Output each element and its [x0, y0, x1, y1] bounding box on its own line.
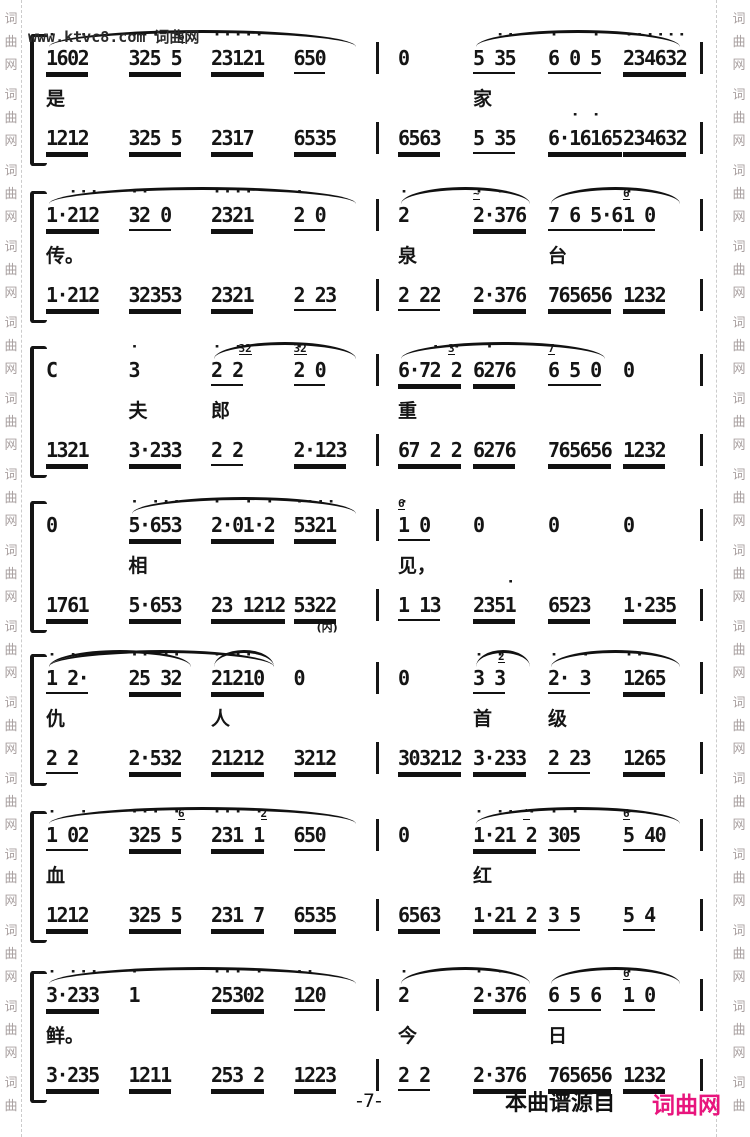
system-half: 0˙ ˙3 32˙ ˙2· 3˙˙ 1265首级3032123·2332 231… — [398, 666, 698, 786]
note-group: 1·212 — [46, 283, 99, 311]
note-cell: 303212 — [398, 746, 473, 778]
note-group: 0 — [294, 666, 305, 692]
note-cell: ˙ ˙˙ ˙1·21 2' — [473, 823, 548, 855]
note-cell: 5 35 — [473, 126, 548, 158]
grace-note: 6 — [623, 808, 630, 820]
note-cell: ˙˙˙1·212 — [46, 203, 129, 235]
system-half: ˙ ˙ 1 2·˙˙ ˙˙25 32˙˙˙˙ 212100仇人2 22·5322… — [46, 666, 376, 786]
note-cell: ˙˙˙˙˙23121 — [211, 46, 294, 78]
lyric-text: 人 — [211, 704, 294, 732]
note-cell: ˙˙ 1265 — [623, 666, 698, 698]
note-cell: 0 — [548, 513, 623, 545]
note-cell: 1212 — [46, 126, 129, 158]
octave-dots: ˙˙˙˙˙ — [211, 35, 264, 49]
note-cell: ˙˙˙˙5321 — [294, 513, 377, 545]
system-half: ˙2˙ ˙ 2·376~7 6 5·6˙ 1 06泉台2 222·3767656… — [398, 203, 698, 323]
barline — [376, 899, 379, 931]
system-half: C˙3˙ ˙2 232˙ 2 032夫郎13213·2332 22·123 — [46, 358, 376, 478]
slur-layer — [398, 494, 698, 512]
note-group: 2 2 — [211, 438, 243, 466]
vocal-line: ˙ ˙˙˙3·233˙1˙˙˙ ˙25302˙˙ 120 — [46, 983, 376, 1015]
grace-note: ' — [523, 808, 530, 820]
note-cell: ˙ 1 06 — [623, 203, 698, 235]
note-cell: ˙ 6276 — [473, 358, 548, 390]
vocal-line: ˙ ˙ 1 2·˙˙ ˙˙25 32˙˙˙˙ 212100 — [46, 666, 376, 698]
system-bracket — [30, 654, 47, 786]
note-group: 1761 — [46, 593, 88, 621]
note-cell: C — [46, 358, 129, 390]
note-cell: ˙ ˙305 — [548, 823, 623, 855]
lyric-text: 台 — [548, 241, 623, 269]
note-cell: 1232 — [623, 283, 698, 315]
accompaniment-line: 2 222·3767656561232 — [398, 283, 698, 315]
note-cell: 5·653 — [129, 593, 212, 625]
grace-note: 32 — [239, 343, 252, 355]
octave-dots: ˙˙˙ — [46, 192, 99, 206]
note-cell: ˙˙ ˙˙25 32 — [129, 666, 212, 698]
octave-dots: ˙˙˙˙ — [211, 192, 253, 206]
barline — [700, 434, 703, 466]
note-group: 5322 — [294, 593, 336, 621]
note-cell: 231 7 — [211, 903, 294, 935]
note-group: 6535 — [294, 126, 336, 154]
barline — [700, 122, 703, 154]
octave-dots: ˙ ˙ — [473, 972, 526, 986]
note-group: 2317 — [211, 126, 253, 154]
note-cell: 0 — [473, 513, 548, 545]
annotation-text: (内) — [317, 619, 338, 635]
accompaniment-line: 3·2351211253 21223 — [46, 1063, 376, 1095]
note-group: 2321 — [211, 283, 253, 311]
note-group: 67 2 2 — [398, 438, 461, 466]
note-cell: 1761 — [46, 593, 129, 625]
note-group: 234632 — [623, 126, 686, 154]
accompaniment-line: 65631·21 23 55 4 — [398, 903, 698, 935]
note-cell: 6563 — [398, 126, 473, 158]
note-cell: ˙ ˙˙˙3·233 — [46, 983, 129, 1015]
barline — [700, 662, 703, 694]
lyrics-line: 是 — [46, 84, 376, 112]
lyric-text: 首 — [473, 704, 548, 732]
note-cell: 1321 — [46, 438, 129, 470]
lyrics-line: 见， — [398, 551, 698, 579]
note-cell: 21212 — [211, 746, 294, 778]
barline — [700, 819, 703, 851]
vocal-line: 0˙ ˙˙˙5·653˙ ˙ ˙2·01·2˙˙˙˙5321 — [46, 513, 376, 545]
octave-dots: ˙˙˙˙ — [211, 655, 264, 669]
note-group: 0 — [623, 513, 634, 539]
note-cell: 0 — [623, 513, 698, 545]
note-cell: 1·212 — [46, 283, 129, 315]
note-cell: 3·233 — [129, 438, 212, 470]
note-cell: 1212 — [46, 903, 129, 935]
note-cell: 0 — [398, 666, 473, 698]
note-group: 0 — [398, 666, 409, 692]
barline — [376, 742, 379, 774]
barline — [376, 509, 379, 541]
note-group: 1232 — [623, 283, 665, 311]
note-group: C — [46, 358, 57, 384]
note-group: 1 13 — [398, 593, 440, 621]
note-cell: 650 — [294, 46, 377, 78]
note-cell: 5322(内) — [294, 593, 377, 625]
note-cell: ˙˙ 32 0 — [129, 203, 212, 235]
grace-note: 2 — [498, 651, 505, 663]
lyrics-line: 相 — [46, 551, 376, 579]
octave-dots: ˙ ˙ — [548, 812, 580, 826]
lyric-text: 仇 — [46, 704, 129, 732]
note-group: 6 5 0 — [548, 358, 601, 386]
note-group: 650 — [294, 823, 326, 851]
site-watermark: www.ktvc8.com 词曲网 — [28, 26, 199, 47]
note-cell: ˙˙˙ ˙325 56 — [129, 46, 212, 78]
lyric-text: 重 — [398, 396, 473, 424]
score-system: ˙ ˙ 1 2·˙˙ ˙˙25 32˙˙˙˙ 212100仇人2 22·5322… — [0, 666, 750, 796]
note-cell: 6276 — [473, 438, 548, 470]
note-group: 1211 — [129, 1063, 171, 1091]
barline — [700, 199, 703, 231]
octave-dots: ˙ ˙ — [548, 115, 622, 129]
lyrics-line: 泉台 — [398, 241, 698, 269]
system-half: 0 ˙˙5 35˙ ˙6 0 5˙˙˙˙˙˙234632家65635 35 ˙ … — [398, 46, 698, 166]
barline — [376, 42, 379, 74]
note-cell: 6 5 6 — [548, 983, 623, 1015]
note-cell: 6 5 07 — [548, 358, 623, 390]
watermark-char: 曲 — [731, 487, 747, 506]
lyric-text: 家 — [473, 84, 548, 112]
barline — [700, 742, 703, 774]
note-cell: 3212 — [294, 746, 377, 778]
note-cell: 5 4 — [623, 903, 698, 935]
vocal-line: 0˙ ˙˙ ˙1·21 2'˙ ˙305˙ 5 406 — [398, 823, 698, 855]
note-group: 1·21 2 — [473, 903, 536, 931]
watermark-char: 曲 — [731, 335, 747, 354]
footer-brand-logo: 词曲网 — [652, 1086, 721, 1120]
system-bracket — [30, 191, 47, 323]
note-group: 0 — [398, 823, 409, 849]
note-cell: 253 2 — [211, 1063, 294, 1095]
note-group: 7 6 5·6 — [548, 203, 622, 231]
octave-dots: ˙ — [398, 192, 409, 206]
barline — [376, 434, 379, 466]
barline — [376, 589, 379, 621]
note-cell: 650 — [294, 823, 377, 855]
note-group: 6276 — [473, 438, 515, 466]
vocal-line: 0˙ ˙3 32˙ ˙2· 3˙˙ 1265 — [398, 666, 698, 698]
octave-dots: ˙˙ — [473, 35, 515, 49]
note-cell: ˙ ˙6·72 23 — [398, 358, 473, 390]
vocal-line: ˙ ˙6·72 23 ˙ 62766 5 070 — [398, 358, 698, 390]
note-group: 3·233 — [129, 438, 182, 466]
barline — [376, 279, 379, 311]
lyrics-line: 红 — [398, 861, 698, 889]
barline — [700, 42, 703, 74]
note-group: 2 23 — [548, 746, 590, 774]
vocal-line: C˙3˙ ˙2 232˙ 2 032 — [46, 358, 376, 390]
octave-dots: ˙˙ ˙˙ — [129, 655, 182, 669]
note-cell: 2·123 — [294, 438, 377, 470]
note-group: 3212 — [294, 746, 336, 774]
lyrics-line: 家 — [398, 84, 698, 112]
lyric-text: 传。 — [46, 241, 129, 269]
note-group: 325 5 — [129, 903, 182, 931]
accompaniment-line: 1·2123235323212 23 — [46, 283, 376, 315]
lyric-text: 见， — [398, 551, 473, 579]
note-group: 0 — [398, 46, 409, 72]
note-cell: ˙ 1 06 — [398, 513, 473, 545]
note-group: 3·235 — [46, 1063, 99, 1091]
note-cell: ˙ 2 0 — [294, 203, 377, 235]
page-number: -7- — [356, 1090, 382, 1112]
octave-dots: ˙ — [473, 582, 515, 596]
note-cell: ˙˙˙ ˙25302 — [211, 983, 294, 1015]
note-cell: 2·376 — [473, 283, 548, 315]
grace-note: 7 — [548, 343, 555, 355]
note-cell: ˙ ˙2 232 — [211, 358, 294, 390]
watermark-char: 词 — [3, 8, 19, 27]
note-cell: 2 2 — [211, 438, 294, 470]
note-cell: ˙1 — [129, 983, 212, 1015]
note-cell: 1265 — [623, 746, 698, 778]
note-cell: 2321 — [211, 283, 294, 315]
watermark-char: 曲 — [3, 183, 19, 202]
lyrics-line: 仇人 — [46, 704, 376, 732]
note-cell: 325 5 — [129, 126, 212, 158]
system-half: ˙˙˙1·212˙˙ 32 0˙˙˙˙2321˙ 2 0传。1·21232353… — [46, 203, 376, 323]
note-cell: 0 — [294, 666, 377, 698]
grace-note: ~ — [473, 188, 480, 200]
octave-dots: ˙ ˙ — [46, 655, 88, 669]
note-group: 325 5 — [129, 126, 182, 154]
vocal-line: ˙ 1 06000 — [398, 513, 698, 545]
grace-note: 6 — [178, 808, 185, 820]
watermark-char: 词 — [731, 8, 747, 27]
note-cell: 1·21 2 — [473, 903, 548, 935]
octave-dots: ˙˙˙ ˙ — [129, 812, 182, 826]
octave-dots: ˙˙ — [294, 972, 326, 986]
barline — [376, 354, 379, 386]
note-group: 1223 — [294, 1063, 336, 1091]
accompaniment-line: 3032123·2332 231265 — [398, 746, 698, 778]
note-group: 303212 — [398, 746, 461, 774]
note-cell: ˙2351 — [473, 593, 548, 625]
note-cell: ˙˙ 120 — [294, 983, 377, 1015]
accompaniment-line: 67 2 262767656561232 — [398, 438, 698, 470]
note-cell: 234632 — [623, 126, 698, 158]
note-cell: ˙˙5 35 — [473, 46, 548, 78]
note-cell: ˙ ˙˙˙5·653 — [129, 513, 212, 545]
barline — [700, 979, 703, 1011]
note-cell: ˙ ˙ 6·16165 — [548, 126, 623, 158]
vocal-line: ˙ ˙1 02˙˙˙ ˙325 56˙˙˙ ˙231 12650 — [46, 823, 376, 855]
note-cell: ˙ 5 406 — [623, 823, 698, 855]
system-bracket — [30, 346, 47, 478]
note-group: 21212 — [211, 746, 264, 774]
note-cell: ˙˙˙ ˙231 12 — [211, 823, 294, 855]
lyric-text: 郎 — [211, 396, 294, 424]
system-half: ˙ ˙˙˙3·233˙1˙˙˙ ˙25302˙˙ 120鲜。3·23512112… — [46, 983, 376, 1103]
note-cell: 32353 — [129, 283, 212, 315]
note-cell: 6563 — [398, 903, 473, 935]
note-cell: 2 2 — [46, 746, 129, 778]
note-cell: 2 23 — [548, 746, 623, 778]
score-system: ˙˙˙1·212˙˙ 32 0˙˙˙˙2321˙ 2 0传。1·21232353… — [0, 203, 750, 333]
note-group: 0 — [473, 513, 484, 539]
barline — [700, 354, 703, 386]
note-group: 6535 — [294, 903, 336, 931]
note-group: 32353 — [129, 283, 182, 311]
note-cell: ˙˙˙˙˙˙234632 — [623, 46, 698, 78]
note-group: 3·233 — [473, 746, 526, 774]
note-group: 2 23 — [294, 283, 336, 311]
note-cell: 6535 — [294, 903, 377, 935]
sheet-music-page: 词曲网词曲网词曲网词曲网词曲网词曲网词曲网词曲网词曲网词曲网词曲网词曲网词曲网词… — [0, 0, 750, 1137]
note-cell: ˙ ˙ 2·376 — [473, 983, 548, 1015]
octave-dots: ˙ ˙ — [473, 192, 526, 206]
octave-dots: ˙ — [129, 972, 140, 986]
note-cell: 2317 — [211, 126, 294, 158]
grace-note: 6 — [398, 498, 405, 510]
note-cell: 7 6 5·6 — [548, 203, 623, 235]
system-bracket — [30, 501, 47, 633]
note-cell: 1232 — [623, 438, 698, 470]
lyric-text: 今 — [398, 1021, 473, 1049]
note-cell: ˙ 1 06 — [623, 983, 698, 1015]
score-system: C˙3˙ ˙2 232˙ 2 032夫郎13213·2332 22·123 ˙ … — [0, 358, 750, 488]
system-half: ˙ 1 06000见，1 13 ˙235165231·235 — [398, 513, 698, 633]
vocal-line: ˙˙˙1·212˙˙ 32 0˙˙˙˙2321˙ 2 0 — [46, 203, 376, 235]
lyrics-line: 夫郎 — [46, 396, 376, 424]
barline — [376, 979, 379, 1011]
note-group: 0 — [623, 358, 634, 384]
note-cell: 0 — [46, 513, 129, 545]
accompaniment-line: 2 22·532212123212 — [46, 746, 376, 778]
note-cell: 2·532 — [129, 746, 212, 778]
system-half: 0˙ ˙˙ ˙1·21 2'˙ ˙305˙ 5 406红65631·21 23 … — [398, 823, 698, 943]
barline — [700, 899, 703, 931]
note-group: 5 35 — [473, 126, 515, 154]
barline — [376, 199, 379, 231]
note-group: 3 5 — [548, 903, 580, 931]
note-group: 253 2 — [211, 1063, 264, 1091]
lyric-text: 泉 — [398, 241, 473, 269]
lyrics-line: 血 — [46, 861, 376, 889]
lyric-text: 是 — [46, 84, 129, 112]
grace-note: 3 — [448, 343, 455, 355]
octave-dots: ˙˙˙ ˙ — [211, 972, 264, 986]
accompaniment-line: 1212325 523176535 — [46, 126, 376, 158]
watermark-char: 曲 — [3, 335, 19, 354]
lyrics-line: 传。 — [46, 241, 376, 269]
accompaniment-line: 1 13 ˙235165231·235 — [398, 593, 698, 625]
system-bracket — [30, 34, 47, 166]
note-group: 231 7 — [211, 903, 264, 931]
note-group: 1·235 — [623, 593, 676, 621]
note-cell: ˙ ˙ 2·376~ — [473, 203, 548, 235]
lyrics-line: 鲜。 — [46, 1021, 376, 1049]
barline — [376, 819, 379, 851]
octave-dots: ˙ — [473, 347, 515, 361]
note-group: 1212 — [46, 126, 88, 154]
note-cell: 0 — [398, 823, 473, 855]
note-cell: 67 2 2 — [398, 438, 473, 470]
vocal-line: ˙2˙ ˙ 2·376~7 6 5·6˙ 1 06 — [398, 203, 698, 235]
barline — [376, 122, 379, 154]
note-cell: 2 23 — [294, 283, 377, 315]
barline — [376, 662, 379, 694]
score-system: 0˙ ˙˙˙5·653˙ ˙ ˙2·01·2˙˙˙˙5321相17615·653… — [0, 513, 750, 643]
octave-dots: ˙ — [398, 972, 409, 986]
score-system: ˙ ˙1602˙˙˙ ˙325 56˙˙˙˙˙23121650是1212325 … — [0, 46, 750, 176]
octave-dots: ˙˙ — [623, 655, 665, 669]
note-group: 765656 — [548, 438, 611, 466]
note-cell: ˙ ˙6 0 5 — [548, 46, 623, 78]
octave-dots: ˙˙ — [129, 192, 171, 206]
grace-note: 32 — [294, 343, 307, 355]
note-group: 2·532 — [129, 746, 182, 774]
lyric-text: 级 — [548, 704, 623, 732]
octave-dots: ˙ ˙ ˙ — [211, 502, 274, 516]
note-cell: ˙˙˙˙2321 — [211, 203, 294, 235]
note-cell: 0 — [623, 358, 698, 390]
note-group: 5·653 — [129, 593, 182, 621]
octave-dots: ˙ ˙ — [46, 812, 88, 826]
octave-dots: ˙ ˙˙˙ — [46, 972, 99, 986]
note-cell: 3·235 — [46, 1063, 129, 1095]
system-bracket — [30, 971, 47, 1103]
note-cell: 765656 — [548, 283, 623, 315]
octave-dots: ˙˙˙˙ — [294, 502, 336, 516]
barline — [700, 589, 703, 621]
note-group: 650 — [294, 46, 326, 74]
grace-note: 6 — [623, 188, 630, 200]
system-half: ˙ ˙1 02˙˙˙ ˙325 56˙˙˙ ˙231 12650血1212325… — [46, 823, 376, 943]
note-cell: ˙ ˙3 32 — [473, 666, 548, 698]
accompaniment-line: 65635 35 ˙ ˙ 6·16165234632 — [398, 126, 698, 158]
system-half: 0˙ ˙˙˙5·653˙ ˙ ˙2·01·2˙˙˙˙5321相17615·653… — [46, 513, 376, 633]
lyrics-line: 首级 — [398, 704, 698, 732]
note-group: 2 2 — [46, 746, 78, 774]
note-group: 2 2 — [398, 1063, 430, 1091]
footer-source-text: 本曲谱源自 — [505, 1085, 615, 1117]
note-cell: ˙ 2 032 — [294, 358, 377, 390]
note-group: 6523 — [548, 593, 590, 621]
note-cell: 0 — [398, 46, 473, 78]
note-group: 2 22 — [398, 283, 440, 311]
slur-arc — [551, 187, 680, 204]
barline — [376, 1059, 379, 1091]
barline — [700, 279, 703, 311]
lyric-text: 红 — [473, 861, 548, 889]
note-cell: ˙ ˙2· 3 — [548, 666, 623, 698]
grace-note: 2 — [261, 808, 268, 820]
lyric-text: 日 — [548, 1021, 623, 1049]
note-group: 1265 — [623, 746, 665, 774]
watermark-char: 曲 — [3, 487, 19, 506]
note-group: 2·376 — [473, 283, 526, 311]
lyric-text: 相 — [129, 551, 212, 579]
note-cell: 3 5 — [548, 903, 623, 935]
accompaniment-line: 1212325 5231 76535 — [46, 903, 376, 935]
grace-note: 6 — [623, 968, 630, 980]
octave-dots: ˙ — [129, 347, 140, 361]
octave-dots: ˙ ˙ — [548, 35, 601, 49]
note-group: 6 5 6 — [548, 983, 601, 1011]
lyric-text: 血 — [46, 861, 129, 889]
note-group: 0 — [548, 513, 559, 539]
score-system: ˙ ˙1 02˙˙˙ ˙325 56˙˙˙ ˙231 12650血1212325… — [0, 823, 750, 953]
note-group: 0 — [46, 513, 57, 539]
